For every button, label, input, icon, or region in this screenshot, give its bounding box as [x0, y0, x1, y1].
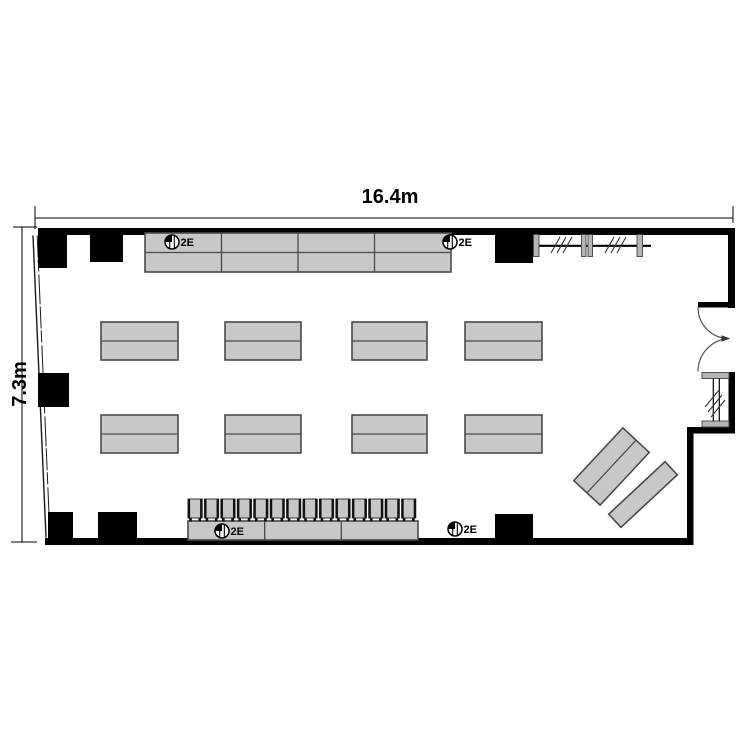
extinguisher-label: 2E [181, 237, 194, 249]
chair-seat [204, 499, 218, 518]
chair-leg [304, 518, 307, 522]
chair [287, 499, 301, 522]
extinguisher-label: 2E [459, 237, 472, 249]
chair-leg [281, 518, 284, 522]
table-group [225, 322, 301, 360]
extinguishers-layer: 2E2E2E2E [165, 235, 477, 538]
column [38, 373, 69, 407]
floor-plan: 16.4m 7.3m [0, 0, 750, 750]
floor-plan-drawing: 16.4m 7.3m [0, 0, 750, 750]
table-group [352, 322, 427, 360]
chair-leg [231, 518, 234, 522]
chair [336, 499, 350, 522]
step-wall [687, 427, 735, 434]
partition-post [534, 235, 540, 257]
columns-layer [38, 228, 533, 540]
column [38, 228, 67, 268]
door-meeting-arrow [722, 335, 731, 342]
double-door-arc-bottom [698, 339, 729, 372]
chair [188, 499, 202, 522]
chair-leg [396, 518, 399, 522]
chair-leg [297, 518, 300, 522]
table-group [465, 322, 542, 360]
chair [237, 499, 251, 522]
window-mullion [702, 373, 729, 428]
chair [221, 499, 235, 522]
chair-leg [248, 518, 251, 522]
chair-leg [206, 518, 209, 522]
column [90, 228, 123, 262]
chair-leg [354, 518, 357, 522]
right-wall-upper [728, 228, 735, 308]
chair-leg [271, 518, 274, 522]
chair-leg [238, 518, 241, 522]
dimension-line-horizontal: 16.4m [35, 186, 733, 229]
chair-leg [189, 518, 192, 522]
partition-track [533, 235, 651, 257]
chair [369, 499, 383, 522]
chair-leg [255, 518, 258, 522]
chair-seat [369, 499, 383, 518]
column [48, 512, 73, 540]
chair-seat [336, 499, 350, 518]
chair-seat [319, 499, 333, 518]
window-cap-bottom [702, 421, 729, 427]
height-dimension-label: 7.3m [9, 361, 31, 407]
right-wall-mid [729, 372, 736, 433]
chair-leg [321, 518, 324, 522]
column [495, 514, 533, 540]
chair [303, 499, 317, 522]
table-group [352, 415, 427, 453]
chair-seat [402, 499, 416, 518]
chair-seat [303, 499, 317, 518]
chair-leg [198, 518, 201, 522]
column [495, 228, 533, 263]
dimension-line-vertical: 7.3m [9, 227, 37, 542]
chair-leg [313, 518, 316, 522]
chair [270, 499, 284, 522]
chair-seat [254, 499, 268, 518]
extinguisher-label: 2E [464, 524, 477, 536]
chair-seat [188, 499, 202, 518]
chair [385, 499, 399, 522]
table-group [225, 415, 301, 453]
chair-leg [337, 518, 340, 522]
partition-post [582, 235, 587, 257]
partition-post [637, 235, 643, 257]
chair-leg [264, 518, 267, 522]
right-wall-lower [687, 427, 694, 545]
chair-seat [270, 499, 284, 518]
extinguisher-symbol: 2E [448, 522, 477, 536]
chair [319, 499, 333, 522]
chair [402, 499, 416, 522]
chair-seat [352, 499, 366, 518]
width-dimension-label: 16.4m [362, 186, 419, 208]
double-door-arc-top [698, 308, 729, 339]
door-header-wall [698, 302, 735, 308]
chair-leg [403, 518, 406, 522]
double-door [698, 308, 730, 372]
chair-leg [363, 518, 366, 522]
chair-leg [215, 518, 218, 522]
chair-leg [386, 518, 389, 522]
window-cap-top [702, 373, 729, 379]
partition-post [588, 235, 593, 257]
chair [204, 499, 218, 522]
table-group [101, 322, 178, 360]
extinguisher-sector [448, 522, 455, 529]
chair-seat [385, 499, 399, 518]
window-hatch [705, 390, 725, 417]
diagonal-tables-layer [574, 428, 678, 527]
column [98, 512, 137, 540]
chair-leg [412, 518, 415, 522]
chair-seat [287, 499, 301, 518]
table-group [101, 415, 178, 453]
extinguisher-symbol: 2E [443, 235, 472, 249]
chair-leg [346, 518, 349, 522]
table-group [465, 415, 542, 453]
chair-leg [288, 518, 291, 522]
chair-leg [330, 518, 333, 522]
chair [352, 499, 366, 522]
chairs-layer [188, 499, 416, 522]
chair-seat [221, 499, 235, 518]
chair-leg [222, 518, 225, 522]
chair-leg [370, 518, 373, 522]
chair-seat [237, 499, 251, 518]
chair-leg [379, 518, 382, 522]
chair [254, 499, 268, 522]
tables-layer [101, 233, 542, 540]
extinguisher-label: 2E [231, 526, 244, 538]
